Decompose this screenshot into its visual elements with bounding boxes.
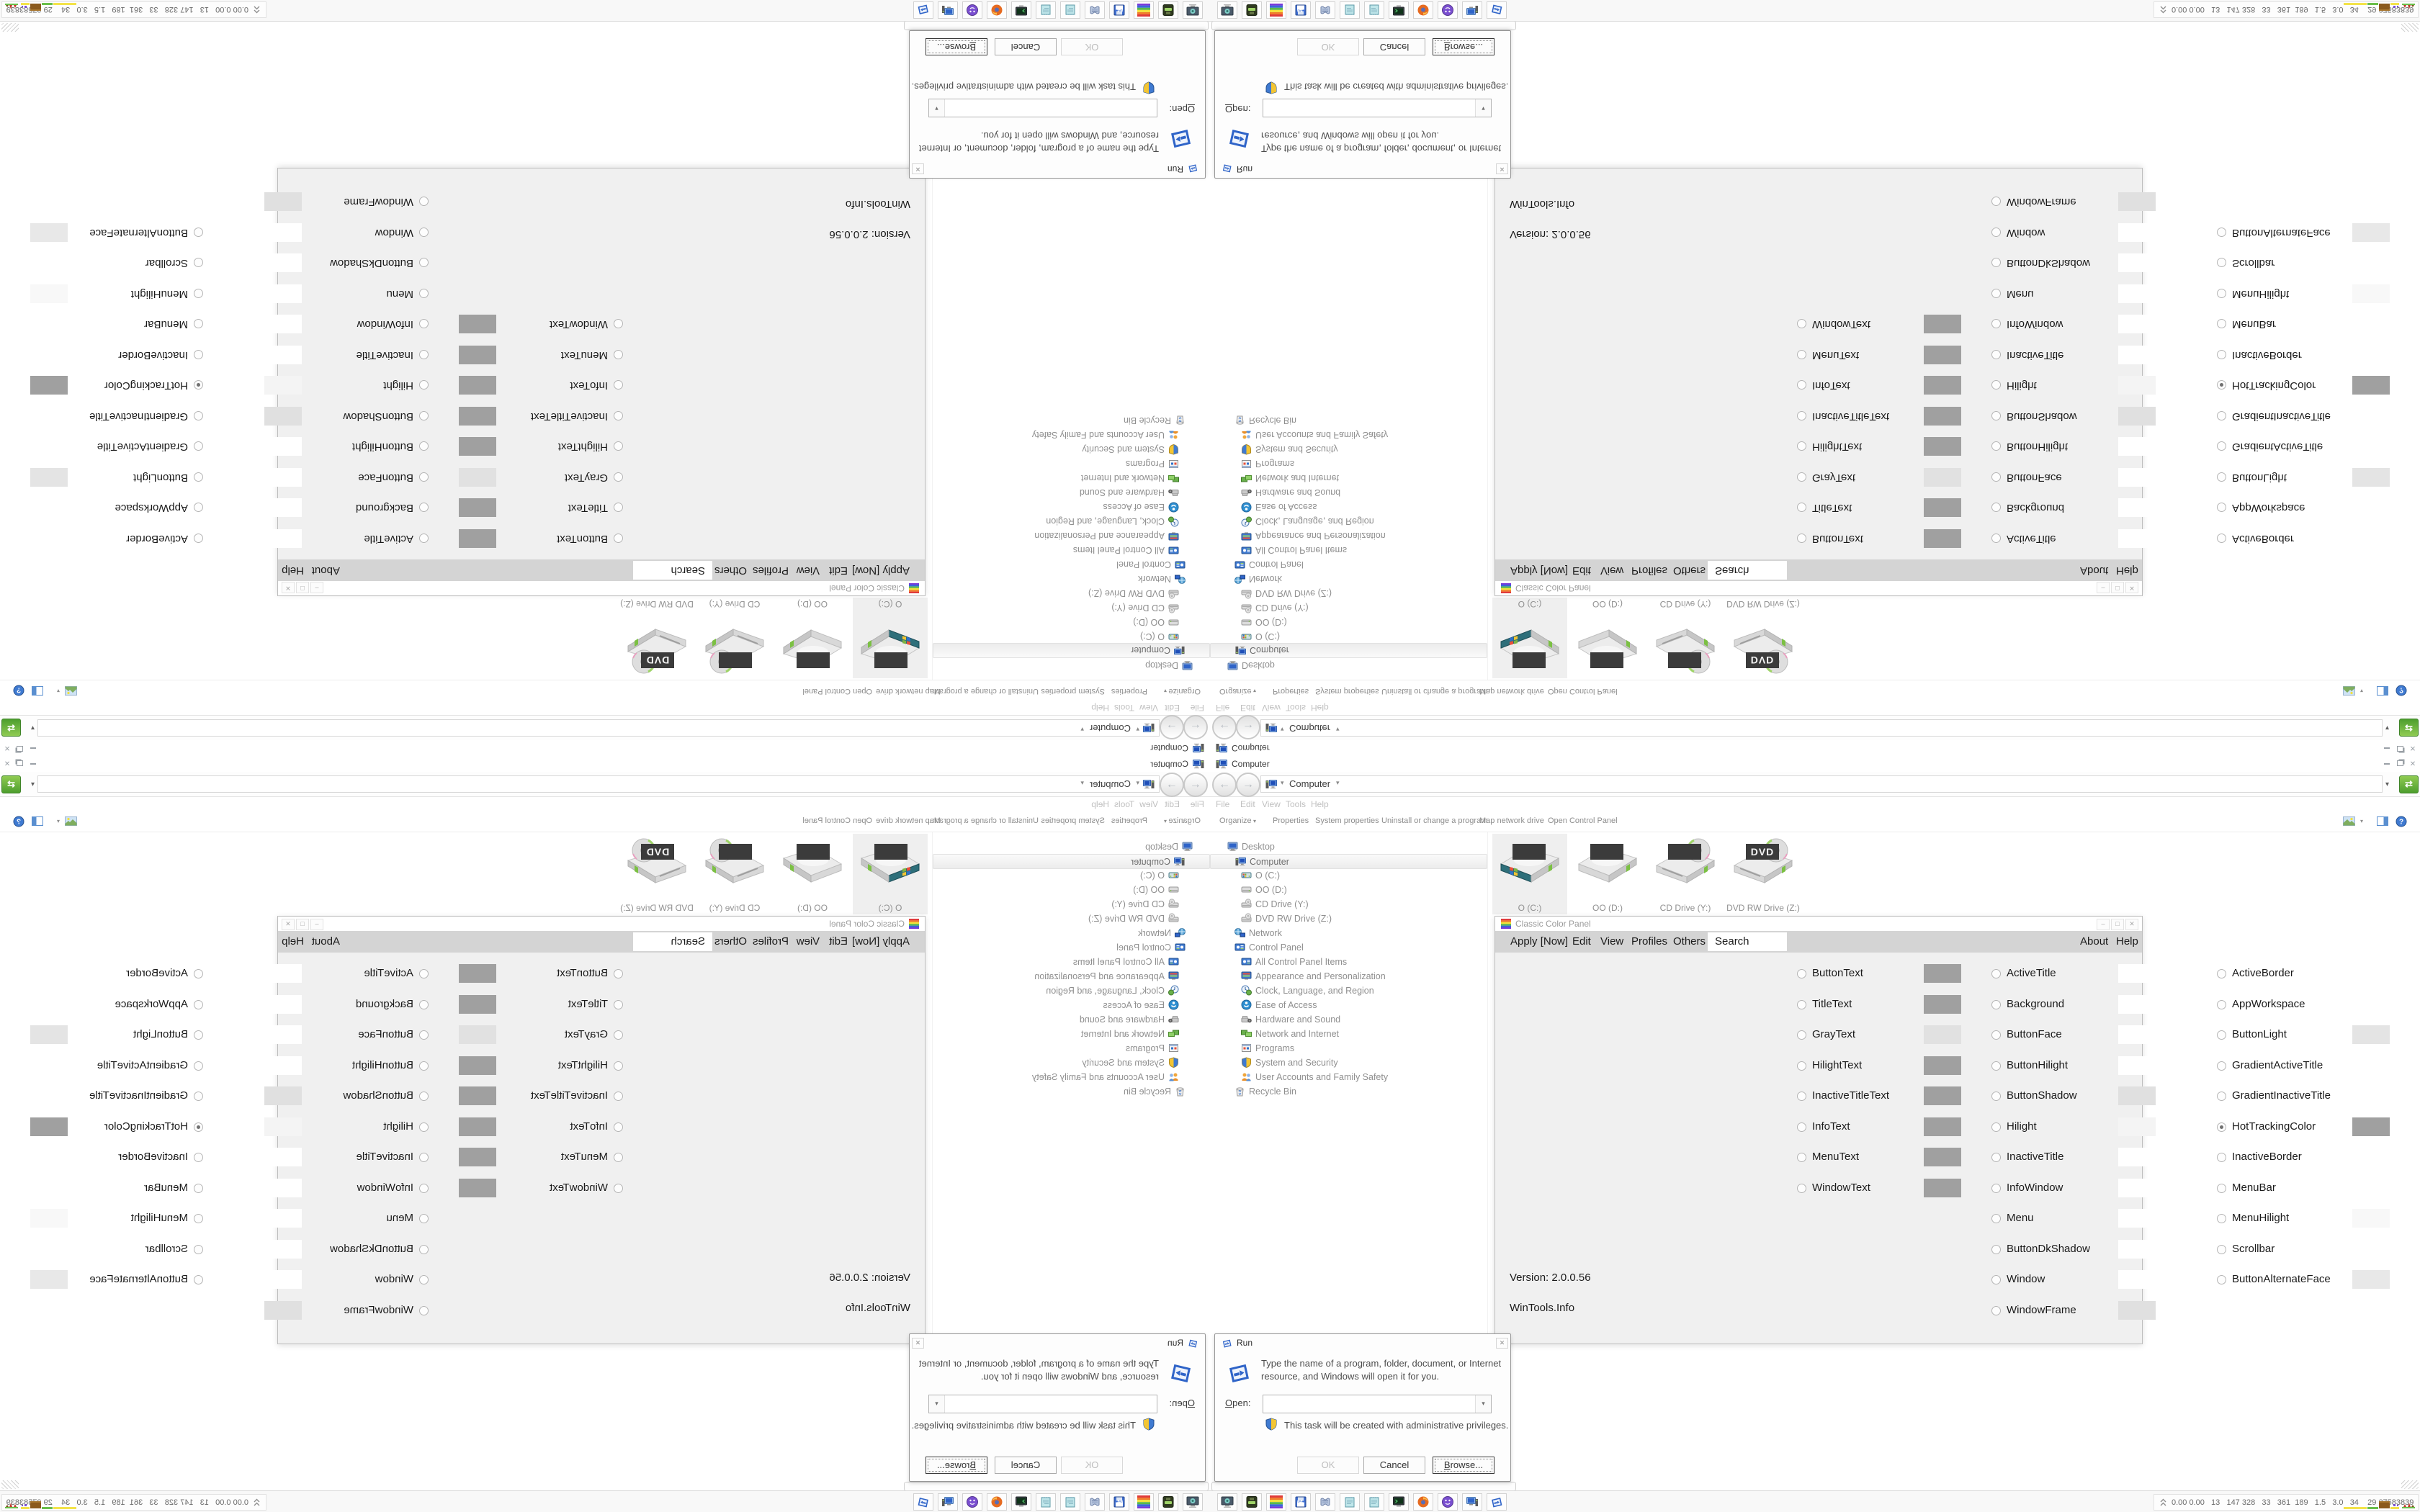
tree-item[interactable]: Hardware and Sound: [1210, 486, 1486, 500]
close-button[interactable]: ✕: [2125, 919, 2138, 930]
taskbar-button[interactable]: [1462, 1493, 1482, 1511]
tree-item[interactable]: Recycle Bin: [1210, 414, 1486, 428]
color-swatch[interactable]: [264, 1209, 302, 1228]
taskbar-button[interactable]: [1315, 1493, 1335, 1511]
radio-button[interactable]: [614, 350, 623, 359]
color-swatch[interactable]: [2118, 964, 2156, 983]
radio-button[interactable]: [1797, 503, 1806, 512]
color-swatch[interactable]: [30, 315, 68, 333]
address-bar[interactable]: ▾ Computer ▾: [1260, 719, 2383, 737]
tree-item[interactable]: System and Security: [1210, 443, 1486, 456]
close-button[interactable]: ✕: [282, 919, 295, 930]
radio-button[interactable]: [1797, 1061, 1806, 1071]
refresh-button[interactable]: ⇄: [2399, 775, 2419, 793]
color-swatch[interactable]: [459, 529, 496, 548]
color-swatch[interactable]: [1924, 376, 1961, 395]
taskbar-button[interactable]: [1011, 1493, 1031, 1511]
tree-item[interactable]: System and Security: [934, 443, 1210, 456]
tree-item[interactable]: Network: [934, 572, 1210, 586]
radio-button[interactable]: [1797, 411, 1806, 420]
radio-button[interactable]: [1797, 1000, 1806, 1009]
toolbar-properties[interactable]: Properties: [1111, 687, 1147, 696]
toolbar-system-properties[interactable]: System properties: [1041, 816, 1105, 825]
taskbar-button[interactable]: [1183, 1493, 1203, 1511]
radio-button[interactable]: [2217, 969, 2226, 978]
radio-button[interactable]: [419, 441, 429, 451]
color-swatch[interactable]: [264, 315, 302, 333]
drive-tile[interactable]: O (C:): [1492, 834, 1567, 914]
radio-button[interactable]: [614, 1092, 623, 1101]
address-bar[interactable]: ▾ Computer ▾: [1260, 775, 2383, 793]
color-swatch[interactable]: [2352, 315, 2390, 333]
address-history-dropdown-icon[interactable]: ▾: [31, 780, 35, 788]
browse-button[interactable]: Browse...: [1433, 1457, 1494, 1474]
color-swatch[interactable]: [2352, 1148, 2390, 1166]
taskbar-button[interactable]: [962, 1493, 982, 1511]
menu-item[interactable]: View: [1262, 799, 1281, 809]
color-swatch[interactable]: [459, 995, 496, 1014]
drive-tile[interactable]: O (C:): [853, 834, 928, 914]
refresh-button[interactable]: ⇄: [1, 719, 21, 737]
toolbar-map-network-drive[interactable]: Map network drive: [1479, 816, 1544, 825]
radio-button[interactable]: [1991, 1245, 2001, 1254]
tree-item[interactable]: Control Panel: [934, 940, 1210, 954]
tree-item[interactable]: O (C:): [1210, 630, 1486, 644]
color-swatch[interactable]: [30, 376, 68, 395]
drive-tile[interactable]: OO (D:): [775, 598, 850, 678]
forward-button[interactable]: →: [1236, 715, 1260, 739]
radio-button[interactable]: [1797, 441, 1806, 451]
menu-item[interactable]: Help: [1311, 799, 1329, 809]
color-swatch[interactable]: [30, 253, 68, 272]
radio-button[interactable]: [614, 1000, 623, 1009]
color-swatch[interactable]: [264, 498, 302, 517]
radio-button[interactable]: [2217, 1122, 2226, 1132]
system-tray[interactable]: 0.00 0.00 13 147 328 33 361 189 1.5 3.0 …: [2154, 1494, 2419, 1511]
radio-button[interactable]: [194, 228, 203, 237]
toolbar-properties[interactable]: Properties: [1273, 816, 1309, 825]
radio-button[interactable]: [1991, 258, 2001, 267]
radio-button[interactable]: [1797, 350, 1806, 359]
menu-item[interactable]: File: [1216, 799, 1229, 809]
toolbar-organize[interactable]: Organize: [1219, 687, 1252, 696]
color-swatch[interactable]: [2118, 1301, 2156, 1320]
tree-item[interactable]: Appearance and Personalization: [1210, 969, 1486, 983]
radio-button[interactable]: [419, 1092, 429, 1101]
menu-item[interactable]: View: [1139, 703, 1158, 713]
taskbar-button[interactable]: [1340, 1493, 1360, 1511]
radio-button[interactable]: [419, 1245, 429, 1254]
taskbar-button[interactable]: [1438, 1493, 1458, 1511]
color-swatch[interactable]: [2352, 253, 2390, 272]
menu-view[interactable]: View: [1600, 564, 1623, 577]
toolbar-system-properties[interactable]: System properties: [1315, 687, 1379, 696]
tree-item[interactable]: Network and Internet: [934, 472, 1210, 485]
taskbar-button[interactable]: [1487, 1493, 1507, 1511]
cancel-button[interactable]: Cancel: [995, 1457, 1057, 1474]
tree-item[interactable]: Programs: [1210, 1041, 1486, 1055]
drive-tile[interactable]: OO (D:): [1570, 598, 1645, 678]
radio-button[interactable]: [1991, 1030, 2001, 1040]
color-swatch[interactable]: [30, 223, 68, 242]
chevron-down-icon[interactable]: ▾: [1164, 688, 1167, 694]
radio-button[interactable]: [419, 258, 429, 267]
browse-button[interactable]: Browse...: [926, 1457, 987, 1474]
tree-item[interactable]: User Accounts and Family Safety: [1210, 1070, 1486, 1084]
tree-item[interactable]: OO (D:): [1210, 616, 1486, 629]
tree-item[interactable]: Desktop: [934, 840, 1210, 853]
color-swatch[interactable]: [30, 1025, 68, 1044]
menu-help[interactable]: Help: [2116, 935, 2138, 948]
minimize-button[interactable]: –: [310, 919, 323, 930]
color-swatch[interactable]: [1924, 995, 1961, 1014]
radio-button[interactable]: [2217, 1245, 2226, 1254]
color-swatch[interactable]: [2118, 315, 2156, 333]
taskbar-button[interactable]: [1340, 1, 1360, 19]
tree-item[interactable]: O (C:): [934, 630, 1210, 644]
taskbar-button[interactable]: [1060, 1, 1080, 19]
taskbar-button[interactable]: 64: [1291, 1493, 1311, 1511]
radio-button[interactable]: [419, 1000, 429, 1009]
menu-edit[interactable]: Edit: [829, 564, 848, 577]
radio-button[interactable]: [2217, 1092, 2226, 1101]
menu-item[interactable]: Edit: [1240, 799, 1255, 809]
color-swatch[interactable]: [459, 1086, 496, 1105]
tree-item[interactable]: Ease of Access: [934, 998, 1210, 1012]
combobox-dropdown-icon[interactable]: ▾: [1475, 1395, 1491, 1413]
tree-item[interactable]: Desktop: [1210, 659, 1486, 672]
tree-item[interactable]: Recycle Bin: [934, 414, 1210, 428]
tree-item[interactable]: CD Drive (Y:): [1210, 897, 1486, 911]
color-swatch[interactable]: [2118, 407, 2156, 426]
address-history-dropdown-icon[interactable]: ▾: [2385, 724, 2389, 732]
color-swatch[interactable]: [2118, 468, 2156, 487]
radio-button[interactable]: [194, 1030, 203, 1040]
menu-help[interactable]: Help: [282, 935, 304, 948]
tree-item[interactable]: CD Drive (Y:): [1210, 601, 1486, 615]
color-swatch[interactable]: [459, 437, 496, 456]
refresh-button[interactable]: ⇄: [2399, 719, 2419, 737]
taskbar-button[interactable]: [1438, 1, 1458, 19]
menu-profiles[interactable]: Profiles: [1631, 564, 1667, 577]
close-button[interactable]: ✕: [912, 1338, 924, 1349]
color-swatch[interactable]: [30, 468, 68, 487]
back-button[interactable]: ←: [1212, 773, 1237, 797]
views-icon[interactable]: [2343, 685, 2355, 696]
radio-button[interactable]: [2217, 1000, 2226, 1009]
taskbar-button[interactable]: [1389, 1493, 1409, 1511]
color-swatch[interactable]: [1924, 315, 1961, 333]
color-swatch[interactable]: [264, 1240, 302, 1259]
tree-item[interactable]: Appearance and Personalization: [934, 529, 1210, 543]
menu-about[interactable]: About: [2080, 935, 2108, 948]
radio-button[interactable]: [1991, 472, 2001, 482]
color-swatch[interactable]: [459, 1025, 496, 1044]
tree-item[interactable]: Appearance and Personalization: [934, 969, 1210, 983]
menu-view[interactable]: View: [797, 564, 820, 577]
color-swatch[interactable]: [2352, 1179, 2390, 1197]
tree-item[interactable]: OO (D:): [1210, 883, 1486, 896]
color-swatch[interactable]: [30, 1240, 68, 1259]
radio-button[interactable]: [2217, 534, 2226, 543]
color-swatch[interactable]: [2352, 407, 2390, 426]
radio-button[interactable]: [2217, 441, 2226, 451]
system-tray[interactable]: 0.00 0.00 13 147 328 33 361 189 1.5 3.0 …: [2154, 1, 2419, 18]
show-hidden-icons-chevron[interactable]: [2159, 1497, 2168, 1508]
menu-help[interactable]: Help: [282, 564, 304, 577]
menu-about[interactable]: About: [312, 935, 340, 948]
radio-button[interactable]: [614, 969, 623, 978]
tree-item[interactable]: CD Drive (Y:): [934, 601, 1210, 615]
color-swatch[interactable]: [264, 468, 302, 487]
color-swatch[interactable]: [264, 1086, 302, 1105]
toolbar-system-properties[interactable]: System properties: [1315, 816, 1379, 825]
radio-button[interactable]: [614, 319, 623, 328]
radio-button[interactable]: [1797, 1092, 1806, 1101]
color-swatch[interactable]: [264, 346, 302, 364]
taskbar-button[interactable]: [1217, 1493, 1237, 1511]
color-swatch[interactable]: [1924, 1025, 1961, 1044]
radio-button[interactable]: [419, 1122, 429, 1132]
radio-button[interactable]: [419, 472, 429, 482]
chevron-down-icon[interactable]: ▾: [1080, 725, 1084, 733]
tree-item[interactable]: DVD RW Drive (Z:): [1210, 587, 1486, 600]
menu-item[interactable]: Tools: [1114, 799, 1134, 809]
tree-item[interactable]: Clock, Language, and Region: [1210, 984, 1486, 997]
tree-item[interactable]: O (C:): [1210, 868, 1486, 882]
tree-item[interactable]: Programs: [1210, 457, 1486, 471]
taskbar-button[interactable]: [1413, 1, 1433, 19]
restore-button[interactable]: □: [296, 919, 309, 930]
color-swatch[interactable]: [264, 1270, 302, 1289]
menu-edit[interactable]: Edit: [1572, 564, 1591, 577]
radio-button[interactable]: [1991, 319, 2001, 328]
tree-item[interactable]: All Control Panel Items: [1210, 544, 1486, 557]
tree-item[interactable]: All Control Panel Items: [934, 955, 1210, 968]
tree-item[interactable]: Computer: [933, 643, 1210, 658]
color-swatch[interactable]: [30, 529, 68, 548]
drive-tile[interactable]: O (C:): [853, 598, 928, 678]
tree-item[interactable]: Clock, Language, and Region: [934, 984, 1210, 997]
color-swatch[interactable]: [459, 1148, 496, 1166]
taskbar-button[interactable]: [1389, 1, 1409, 19]
color-swatch[interactable]: [264, 223, 302, 242]
radio-button[interactable]: [1797, 1122, 1806, 1132]
radio-button[interactable]: [614, 503, 623, 512]
color-swatch[interactable]: [264, 1301, 302, 1320]
tree-item[interactable]: Hardware and Sound: [1210, 1012, 1486, 1026]
tree-item[interactable]: Programs: [934, 457, 1210, 471]
color-swatch[interactable]: [459, 376, 496, 395]
toolbar-system-properties[interactable]: System properties: [1041, 687, 1105, 696]
taskbar-button[interactable]: 64: [1291, 1, 1311, 19]
restore-button[interactable]: [2394, 743, 2406, 752]
open-combobox[interactable]: ▾: [1263, 1395, 1492, 1413]
ok-button[interactable]: OK: [1061, 38, 1123, 55]
restore-button[interactable]: [14, 760, 26, 769]
tree-item[interactable]: DVD RW Drive (Z:): [1210, 912, 1486, 925]
tree-item[interactable]: DVD RW Drive (Z:): [934, 587, 1210, 600]
color-swatch[interactable]: [30, 1056, 68, 1075]
taskbar-button[interactable]: [1487, 1, 1507, 19]
chevron-down-icon[interactable]: ▾: [57, 818, 60, 824]
color-swatch[interactable]: [2352, 498, 2390, 517]
radio-button[interactable]: [194, 289, 203, 298]
radio-button[interactable]: [1991, 1184, 2001, 1193]
radio-button[interactable]: [1991, 1306, 2001, 1315]
toolbar-open-control-panel[interactable]: Open Control Panel: [802, 687, 872, 696]
color-swatch[interactable]: [1924, 468, 1961, 487]
toolbar-organize[interactable]: Organize: [1219, 816, 1252, 825]
menu-others[interactable]: Others: [1673, 564, 1706, 577]
tree-item[interactable]: Network and Internet: [1210, 1027, 1486, 1040]
radio-button[interactable]: [614, 1153, 623, 1162]
radio-button[interactable]: [1991, 969, 2001, 978]
color-swatch[interactable]: [2352, 1209, 2390, 1228]
tree-item[interactable]: Computer: [1210, 854, 1487, 869]
toolbar-organize[interactable]: Organize: [1168, 687, 1201, 696]
radio-button[interactable]: [419, 289, 429, 298]
ok-button[interactable]: OK: [1297, 38, 1359, 55]
chevron-down-icon[interactable]: ▾: [57, 688, 60, 694]
color-swatch[interactable]: [2352, 1270, 2390, 1289]
radio-button[interactable]: [1991, 350, 2001, 359]
restore-button[interactable]: □: [2111, 919, 2124, 930]
radio-button[interactable]: [419, 1214, 429, 1223]
radio-button[interactable]: [1797, 380, 1806, 390]
taskbar-button[interactable]: [1266, 1, 1286, 19]
radio-button[interactable]: [1991, 228, 2001, 237]
forward-button[interactable]: →: [1160, 715, 1184, 739]
color-swatch[interactable]: [1924, 498, 1961, 517]
search-input[interactable]: Search: [633, 561, 712, 580]
toolbar-uninstall[interactable]: Uninstall or change a program: [1381, 687, 1487, 696]
chevron-down-icon[interactable]: ▾: [1281, 725, 1284, 733]
radio-button[interactable]: [419, 228, 429, 237]
menu-others[interactable]: Others: [714, 564, 747, 577]
menu-others[interactable]: Others: [1673, 935, 1706, 948]
radio-button[interactable]: [194, 1245, 203, 1254]
drive-tile[interactable]: CD Drive (Y:): [697, 598, 772, 678]
color-swatch[interactable]: [2118, 1148, 2156, 1166]
color-swatch[interactable]: [2352, 1117, 2390, 1136]
views-icon[interactable]: [65, 685, 77, 696]
browse-button[interactable]: Browse...: [1433, 38, 1494, 55]
radio-button[interactable]: [194, 258, 203, 267]
combobox-dropdown-icon[interactable]: ▾: [1475, 99, 1491, 117]
chevron-down-icon[interactable]: ▾: [1253, 688, 1256, 694]
color-swatch[interactable]: [459, 468, 496, 487]
radio-button[interactable]: [2217, 411, 2226, 420]
taskbar-button[interactable]: [938, 1493, 958, 1511]
show-hidden-icons-chevron[interactable]: [252, 1497, 261, 1508]
color-swatch[interactable]: [264, 1148, 302, 1166]
color-swatch[interactable]: [2352, 376, 2390, 395]
radio-button[interactable]: [419, 503, 429, 512]
color-swatch[interactable]: [264, 995, 302, 1014]
color-swatch[interactable]: [2118, 1025, 2156, 1044]
radio-button[interactable]: [1991, 411, 2001, 420]
help-icon[interactable]: ?: [13, 685, 24, 696]
color-swatch[interactable]: [264, 437, 302, 456]
color-swatch[interactable]: [459, 1179, 496, 1197]
color-swatch[interactable]: [1924, 1179, 1961, 1197]
chevron-down-icon[interactable]: ▾: [1136, 779, 1139, 787]
tree-item[interactable]: Ease of Access: [934, 500, 1210, 514]
color-swatch[interactable]: [1924, 346, 1961, 364]
radio-button[interactable]: [194, 472, 203, 482]
radio-button[interactable]: [2217, 1214, 2226, 1223]
color-swatch[interactable]: [2118, 376, 2156, 395]
color-swatch[interactable]: [2118, 1270, 2156, 1289]
radio-button[interactable]: [419, 1153, 429, 1162]
radio-button[interactable]: [1797, 969, 1806, 978]
menu-profiles[interactable]: Profiles: [753, 564, 789, 577]
breadcrumb[interactable]: Computer: [1289, 778, 1330, 789]
close-button[interactable]: ✕: [282, 582, 295, 593]
taskbar-button[interactable]: [1036, 1493, 1056, 1511]
views-icon[interactable]: [2343, 816, 2355, 827]
radio-button[interactable]: [2217, 472, 2226, 482]
radio-button[interactable]: [2217, 1153, 2226, 1162]
toolbar-properties[interactable]: Properties: [1273, 687, 1309, 696]
radio-button[interactable]: [2217, 350, 2226, 359]
menu-item[interactable]: File: [1191, 703, 1204, 713]
color-swatch[interactable]: [459, 346, 496, 364]
toolbar-map-network-drive[interactable]: Map network drive: [1479, 687, 1544, 696]
tree-item[interactable]: Control Panel: [934, 558, 1210, 572]
color-swatch[interactable]: [30, 1179, 68, 1197]
cancel-button[interactable]: Cancel: [1363, 38, 1425, 55]
radio-button[interactable]: [419, 1306, 429, 1315]
radio-button[interactable]: [2217, 1275, 2226, 1284]
radio-button[interactable]: [1991, 1275, 2001, 1284]
browse-button[interactable]: Browse...: [926, 38, 987, 55]
radio-button[interactable]: [614, 1061, 623, 1071]
radio-button[interactable]: [1797, 534, 1806, 543]
tree-item[interactable]: Recycle Bin: [1210, 1084, 1486, 1098]
restore-button[interactable]: □: [296, 582, 309, 593]
menu-edit[interactable]: Edit: [829, 935, 848, 948]
back-button[interactable]: ←: [1183, 773, 1208, 797]
preview-pane-icon[interactable]: [32, 685, 43, 696]
color-swatch[interactable]: [264, 284, 302, 303]
color-swatch[interactable]: [2352, 1056, 2390, 1075]
radio-button[interactable]: [614, 1184, 623, 1193]
restore-button[interactable]: □: [2111, 582, 2124, 593]
radio-button[interactable]: [419, 1275, 429, 1284]
resize-grip[interactable]: [1, 23, 19, 32]
menu-item[interactable]: Edit: [1165, 703, 1180, 713]
show-hidden-icons-chevron[interactable]: [2159, 4, 2168, 15]
radio-button[interactable]: [194, 380, 203, 390]
radio-button[interactable]: [2217, 1184, 2226, 1193]
radio-button[interactable]: [1991, 289, 2001, 298]
radio-button[interactable]: [614, 411, 623, 420]
taskbar-button[interactable]: [1266, 1493, 1286, 1511]
cancel-button[interactable]: Cancel: [995, 38, 1057, 55]
minimize-button[interactable]: [27, 760, 39, 769]
taskbar-button[interactable]: [1217, 1, 1237, 19]
radio-button[interactable]: [614, 441, 623, 451]
radio-button[interactable]: [2217, 503, 2226, 512]
toolbar-open-control-panel[interactable]: Open Control Panel: [1548, 687, 1618, 696]
toolbar-uninstall[interactable]: Uninstall or change a program: [933, 687, 1039, 696]
color-swatch[interactable]: [1924, 1086, 1961, 1105]
open-combobox[interactable]: ▾: [1263, 99, 1492, 117]
color-swatch[interactable]: [264, 1056, 302, 1075]
taskbar-button[interactable]: [987, 1493, 1007, 1511]
